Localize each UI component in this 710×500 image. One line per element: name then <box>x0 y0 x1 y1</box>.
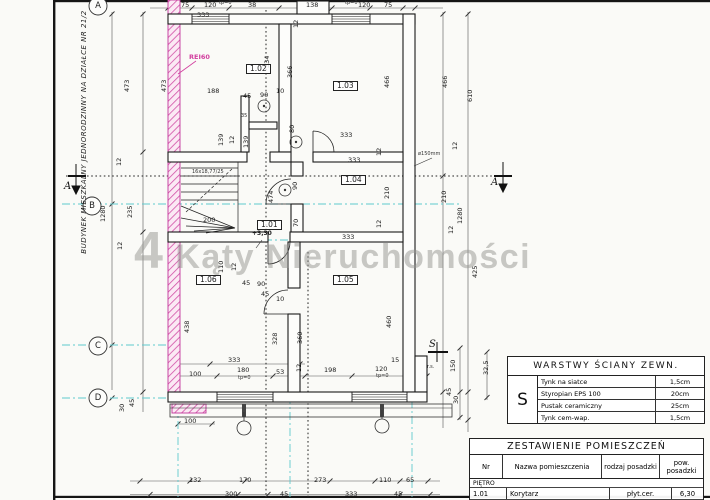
dimension-label: 75 <box>384 2 392 9</box>
dimension-label: 35 <box>241 114 247 119</box>
dimension-label: 273 <box>314 477 326 484</box>
dimension-label: 328 <box>272 333 279 345</box>
dimension-label: 188 <box>207 88 219 95</box>
table-row: Tynk cem-wap. 1,5cm <box>538 411 704 423</box>
dimension-label: 32,5 <box>483 361 490 375</box>
dimension-label: 333 <box>228 357 240 364</box>
dimension-label: 12 <box>116 158 123 166</box>
dimension-label: 45 <box>394 491 402 498</box>
dimension-label: 30 <box>119 404 126 412</box>
dimension-label: 12 <box>117 242 124 250</box>
layer-thickness: 20cm <box>655 388 704 399</box>
header-floor: rodzaj posadzki <box>602 455 660 478</box>
layer-name: Pustak ceramiczny <box>538 402 655 410</box>
layer-name: Tynk na siatce <box>538 378 655 386</box>
layer-name: Tynk cem-wap. <box>538 414 655 422</box>
dimension-label: 10 <box>276 88 284 95</box>
dimension-label: 438 <box>184 321 191 333</box>
dimension-label: 132 <box>189 477 201 484</box>
dimension-label: 90 <box>257 281 265 288</box>
grid-axis-b: B <box>87 201 97 211</box>
dimension-label: tp=0 <box>238 376 251 381</box>
dimension-label: 45 <box>243 93 251 100</box>
dimension-label: 45 <box>129 399 136 407</box>
header-area: pow. posadzki <box>660 455 703 478</box>
watermark: 4 Kąty Nieruchomości <box>134 221 531 281</box>
grid-axis-c: C <box>93 341 103 351</box>
dimension-label: 45 <box>280 491 288 498</box>
dimension-label: 53 <box>276 369 284 376</box>
layer-thickness: 1,5cm <box>655 376 704 387</box>
dimension-label: 12 <box>293 20 300 28</box>
section-letter-s: S <box>429 339 436 350</box>
header-name: Nazwa pomieszczenia <box>503 455 602 478</box>
dimension-label: 139 <box>243 136 250 148</box>
cell-nr: 1.01 <box>470 488 507 499</box>
dimension-label: 110 <box>379 477 391 484</box>
dimension-label: 100 <box>184 418 196 425</box>
dimension-label: 333 <box>340 132 352 139</box>
dimension-label: 180 <box>237 367 249 374</box>
dimension-label: 150 <box>450 360 457 372</box>
wall-layers-title: WARSTWY ŚCIANY ZEWN. <box>508 357 704 376</box>
table-row: Pustak ceramiczny 25cm <box>538 399 704 411</box>
dimension-label: tp=0 <box>219 1 232 6</box>
table-row: Tynk na siatce 1,5cm <box>538 376 704 387</box>
room-label-1-03: 1.03 <box>333 81 358 91</box>
dimension-label: 366 <box>287 66 294 78</box>
dimension-label: 473 <box>124 80 131 92</box>
dimension-label: 138 <box>306 2 318 9</box>
dimension-label: 12 <box>296 364 303 372</box>
room-schedule-table: ZESTAWIENIE POMIESZCZEŃ Nr Nazwa pomiesz… <box>469 438 704 500</box>
dimension-label: 10 <box>276 296 284 303</box>
wall-layers-table: WARSTWY ŚCIANY ZEWN. S Tynk na siatce 1,… <box>507 356 705 424</box>
cell-name: Korytarz <box>507 488 610 499</box>
cell-area: 6,30 <box>672 488 703 499</box>
room-label-1-02: 1.02 <box>246 64 271 74</box>
table-section-label: PIĘTRO <box>470 479 703 488</box>
dimension-label: 460 <box>386 316 393 328</box>
table-row: 1.01 Korytarz płyt.cer. 6,30 <box>470 488 703 500</box>
header-nr: Nr <box>470 455 503 478</box>
dimension-label: tp=0 <box>376 374 389 379</box>
dimension-label: 610 <box>467 90 474 102</box>
layer-thickness: 25cm <box>655 400 704 411</box>
grid-axis-d: D <box>93 393 103 403</box>
dimension-label: 12 <box>376 148 383 156</box>
dimension-label: 170 <box>239 477 251 484</box>
room-schedule-title: ZESTAWIENIE POMIESZCZEŃ <box>470 439 703 455</box>
dimension-label: 45 <box>261 291 269 298</box>
terrace <box>170 404 452 435</box>
section-letter-a-left: A <box>64 181 71 192</box>
dimension-label: 235 <box>127 206 134 218</box>
table-header-row: Nr Nazwa pomieszczenia rodzaj posadzki p… <box>470 455 703 479</box>
room-label-1-04: 1.04 <box>341 175 366 185</box>
pipe-label: ø150mm <box>418 152 440 157</box>
layer-name: Styropian EPS 100 <box>538 390 655 398</box>
dimension-label: 100 <box>189 371 201 378</box>
building-description: BUDYNEK MIESZKALNY JEDNORODZINNY NA DZIA… <box>80 10 88 253</box>
wall-section-symbol: S <box>508 376 538 423</box>
dimension-label: 65 <box>406 477 414 484</box>
dimension-label: 45 <box>446 388 453 396</box>
dimension-label: 333 <box>197 12 209 19</box>
dimension-label: 198 <box>324 367 336 374</box>
dimension-label: 466 <box>442 76 449 88</box>
dimension-label: 12 <box>452 142 459 150</box>
dimension-label: 38 <box>248 2 256 9</box>
layer-thickness: 1,5cm <box>655 412 704 423</box>
grid-axis-a: A <box>93 1 103 11</box>
floor-plan-sheet: BUDYNEK MIESZKALNY JEDNORODZINNY NA DZIA… <box>0 0 710 500</box>
dimension-label: 90 <box>292 182 299 190</box>
dimension-label: 90 <box>260 92 268 99</box>
dimension-label: 1280 <box>100 205 107 222</box>
dimension-label: 333 <box>348 157 360 164</box>
dimension-label: 30 <box>453 396 460 404</box>
dimension-label: 120 <box>358 2 370 9</box>
dimension-label: 210 <box>384 187 391 199</box>
cell-floor: płyt.cer. <box>610 488 672 499</box>
dimension-label: 120 <box>204 2 216 9</box>
dimension-label: 120 <box>375 366 387 373</box>
dimension-label: 473 <box>161 80 168 92</box>
dimension-label: 360 <box>297 332 304 344</box>
dimension-label: 466 <box>384 76 391 88</box>
dimension-label: 15 <box>391 357 399 364</box>
stair-note: 16x18,77/25 <box>192 170 224 175</box>
dimension-label: 300 <box>225 491 237 498</box>
dimension-label: 75 <box>181 2 189 9</box>
dimension-label: 80 <box>289 125 296 133</box>
dimension-label: r.s. <box>427 365 434 370</box>
fire-wall-hatched <box>168 0 210 413</box>
table-row: Styropian EPS 100 20cm <box>538 387 704 399</box>
dimension-label: 139 <box>218 134 225 146</box>
fire-rating-label: REI60 <box>189 54 210 61</box>
dimension-label: 210 <box>441 191 448 203</box>
dimension-label: 12 <box>229 136 236 144</box>
section-letter-a-right: A <box>491 177 498 188</box>
dimension-label: tp=0 <box>345 1 358 6</box>
dimension-label: 474 <box>268 191 275 203</box>
dimension-label: 333 <box>345 491 357 498</box>
